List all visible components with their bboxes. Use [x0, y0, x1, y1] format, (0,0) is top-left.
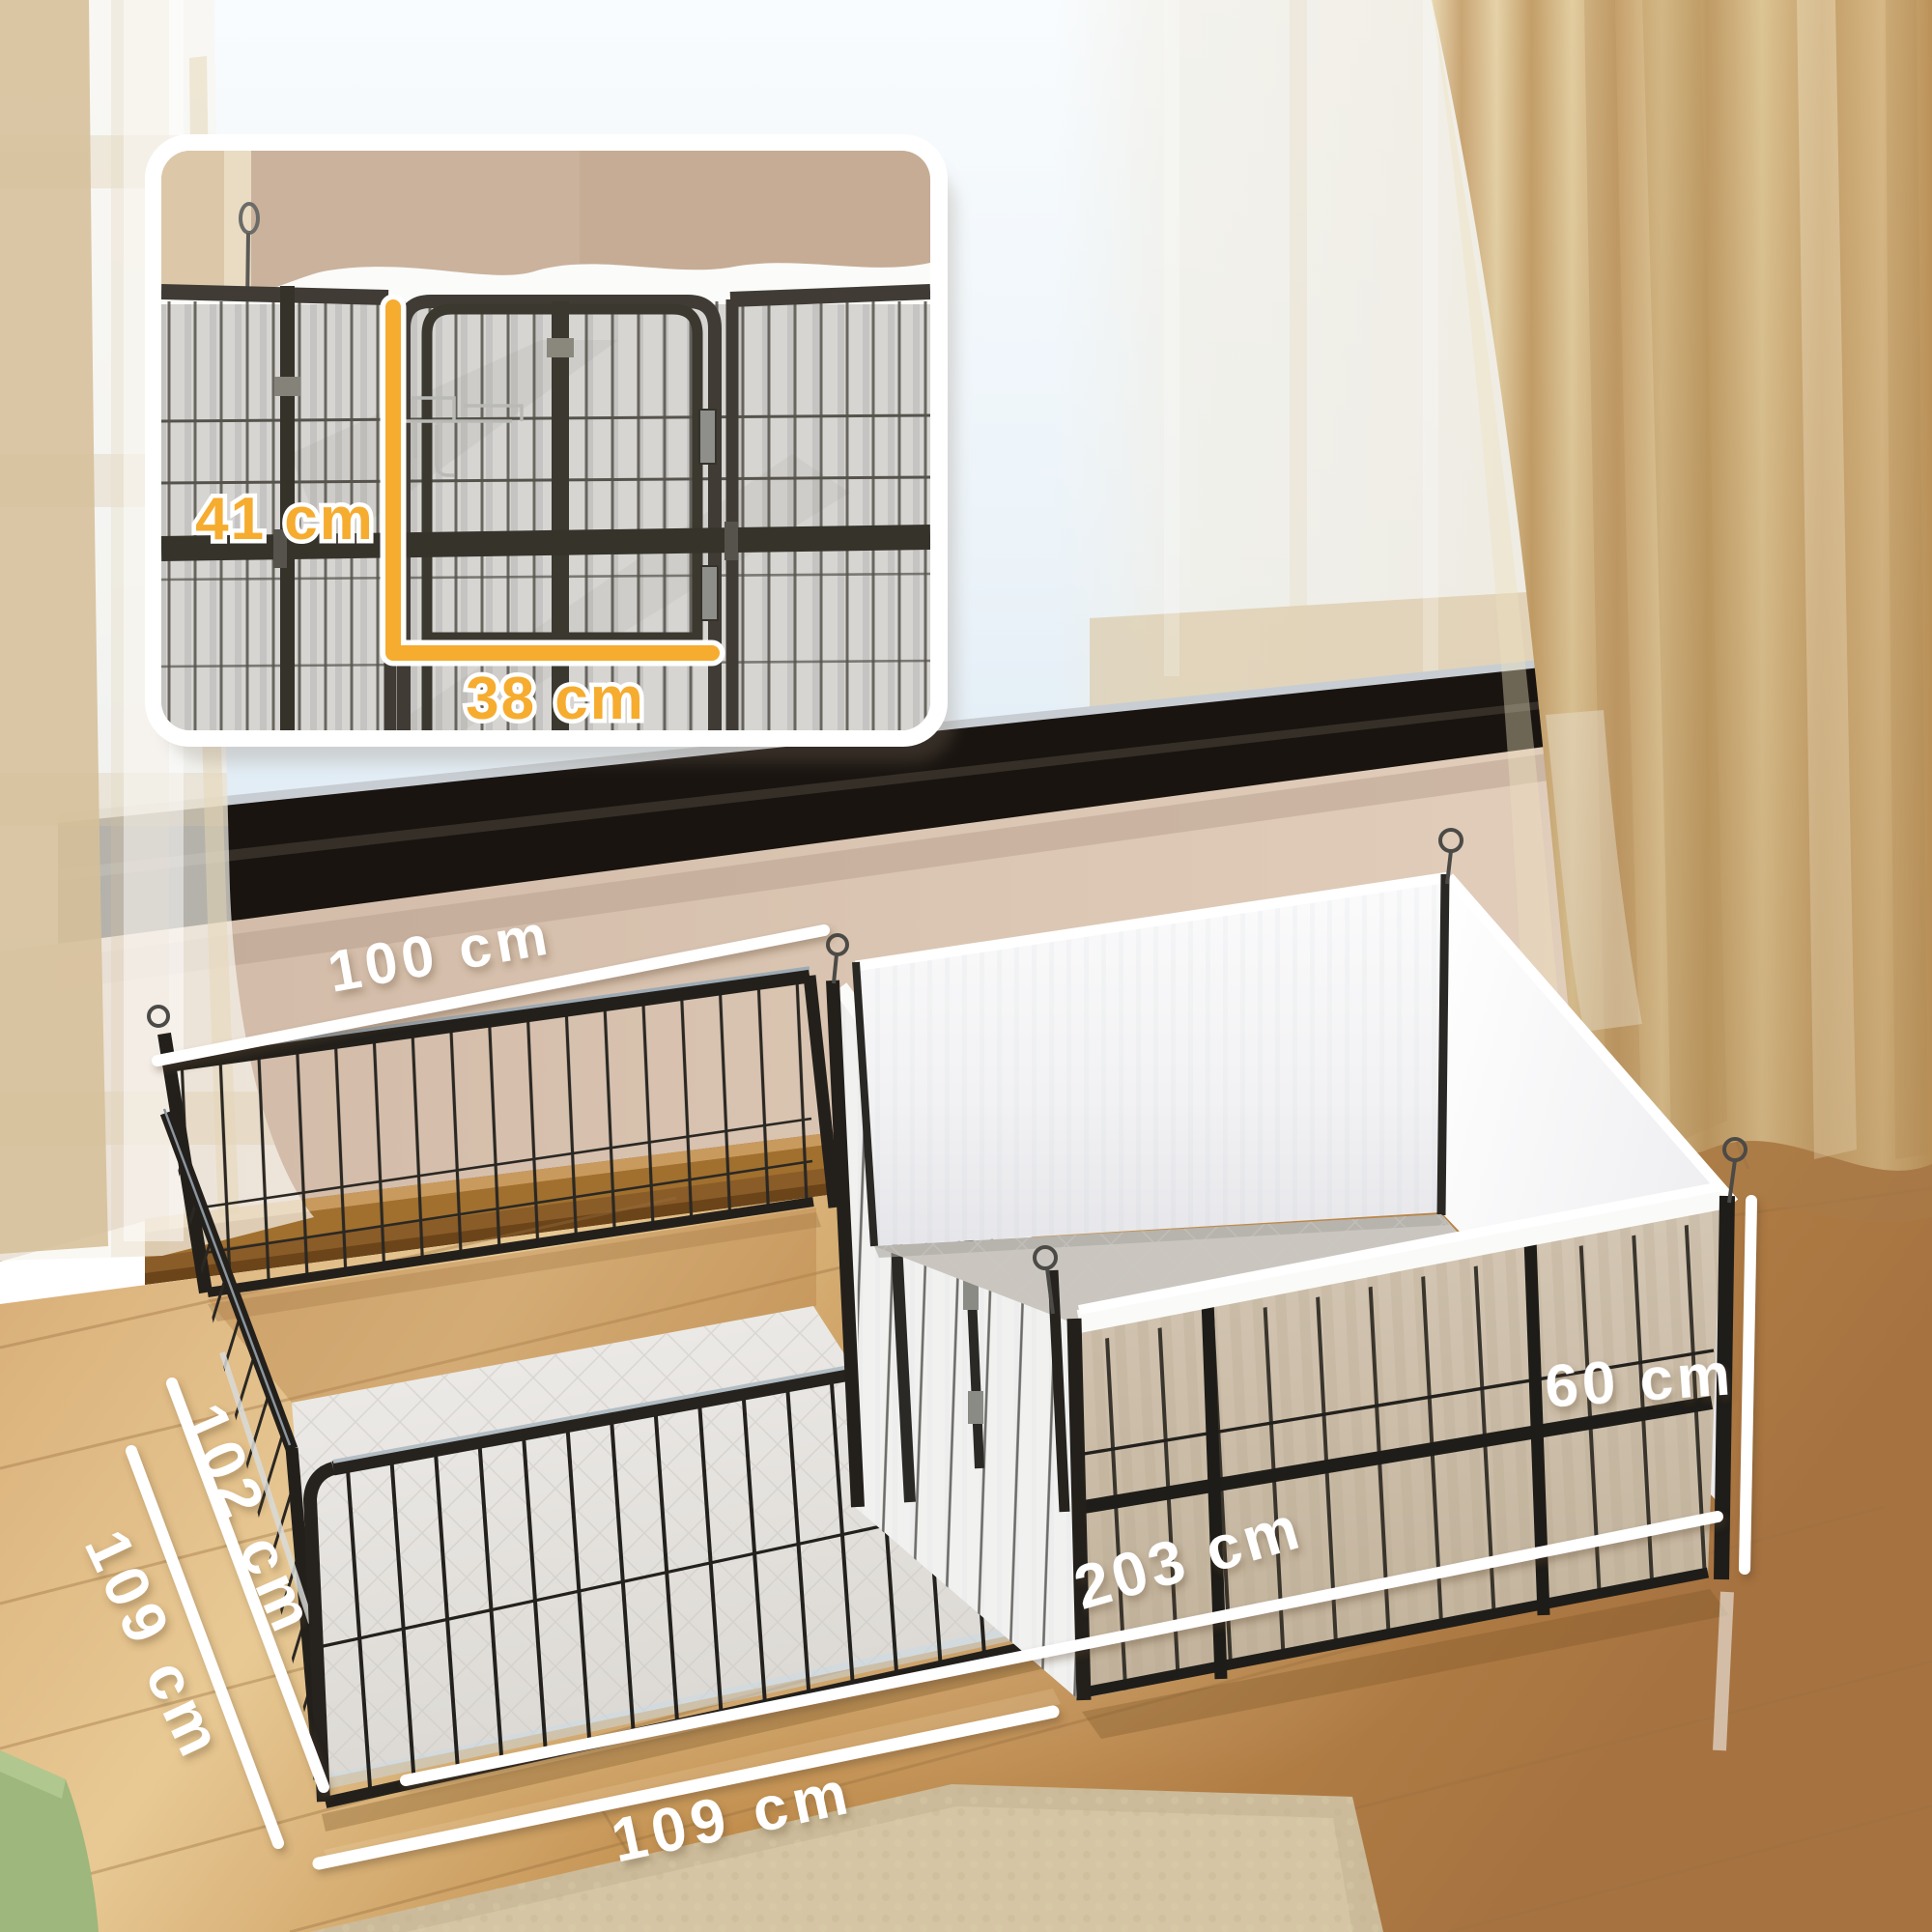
svg-text:38 cm: 38 cm: [466, 666, 645, 732]
svg-text:60 cm: 60 cm: [1543, 1341, 1736, 1420]
svg-text:41 cm: 41 cm: [195, 486, 375, 553]
